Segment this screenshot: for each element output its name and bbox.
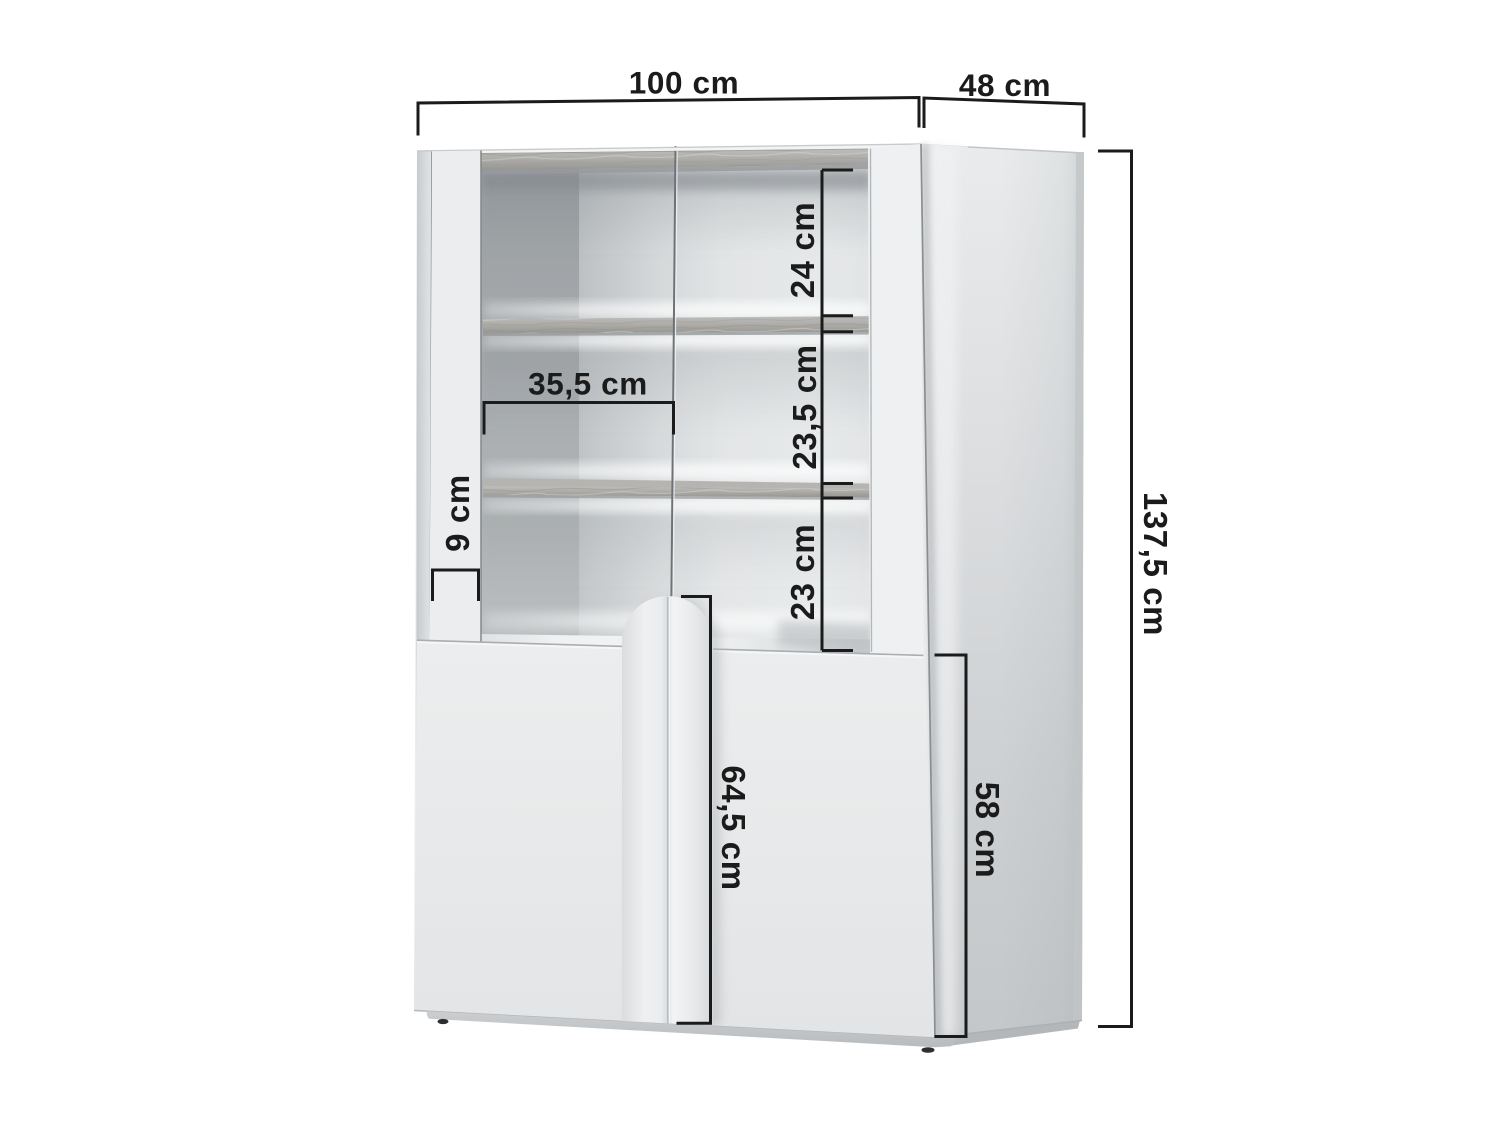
svg-text:58 cm: 58 cm [969, 782, 1006, 879]
svg-text:23,5 cm: 23,5 cm [786, 344, 823, 469]
svg-text:23 cm: 23 cm [784, 524, 821, 621]
svg-text:35,5 cm: 35,5 cm [528, 366, 648, 402]
svg-text:9 cm: 9 cm [439, 474, 476, 552]
svg-text:64,5 cm: 64,5 cm [715, 765, 752, 890]
svg-text:137,5 cm: 137,5 cm [1137, 492, 1174, 636]
svg-text:48 cm: 48 cm [959, 67, 1051, 103]
svg-text:100 cm: 100 cm [629, 65, 739, 101]
svg-text:24 cm: 24 cm [784, 202, 821, 299]
